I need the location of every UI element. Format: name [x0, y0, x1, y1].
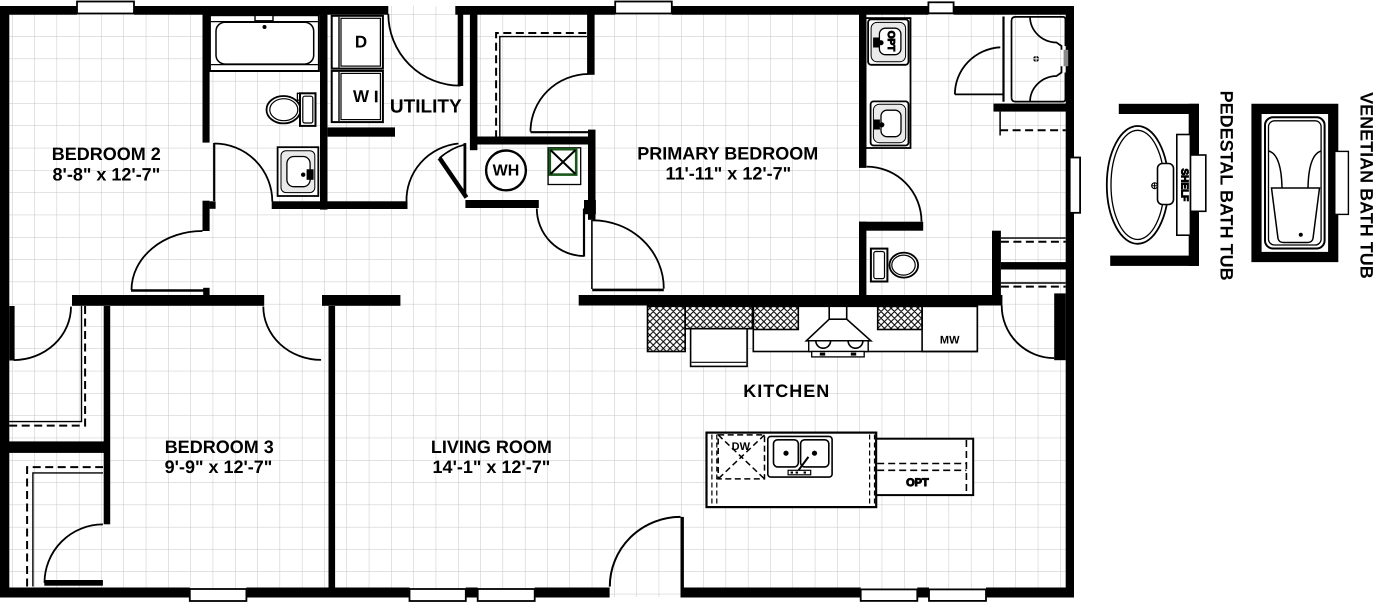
svg-text:OPT: OPT: [906, 477, 929, 489]
svg-text:KITCHEN: KITCHEN: [743, 381, 830, 401]
svg-text:8'-8" x 12'-7": 8'-8" x 12'-7": [53, 164, 161, 184]
svg-text:BEDROOM 2: BEDROOM 2: [52, 144, 161, 164]
svg-text:SHELF: SHELF: [1178, 169, 1189, 202]
svg-text:DW: DW: [732, 441, 751, 453]
svg-text:MW: MW: [940, 335, 960, 347]
svg-text:W: W: [353, 87, 370, 106]
svg-text:UTILITY: UTILITY: [390, 97, 462, 118]
svg-text:VENETIAN BATH TUB: VENETIAN BATH TUB: [1357, 92, 1374, 279]
svg-text:PEDESTAL BATH TUB: PEDESTAL BATH TUB: [1216, 91, 1236, 281]
svg-text:9'-9" x 12'-7": 9'-9" x 12'-7": [165, 457, 273, 477]
svg-text:BEDROOM 3: BEDROOM 3: [165, 437, 274, 457]
svg-text:14'-1" x 12'-7": 14'-1" x 12'-7": [433, 457, 551, 477]
svg-text:WH: WH: [493, 162, 520, 179]
svg-text:PRIMARY BEDROOM: PRIMARY BEDROOM: [637, 144, 818, 164]
svg-text:11'-11" x 12'-7": 11'-11" x 12'-7": [665, 164, 791, 184]
svg-text:OPT: OPT: [885, 31, 896, 52]
svg-text:LIVING ROOM: LIVING ROOM: [431, 437, 552, 457]
svg-text:D: D: [355, 33, 367, 52]
